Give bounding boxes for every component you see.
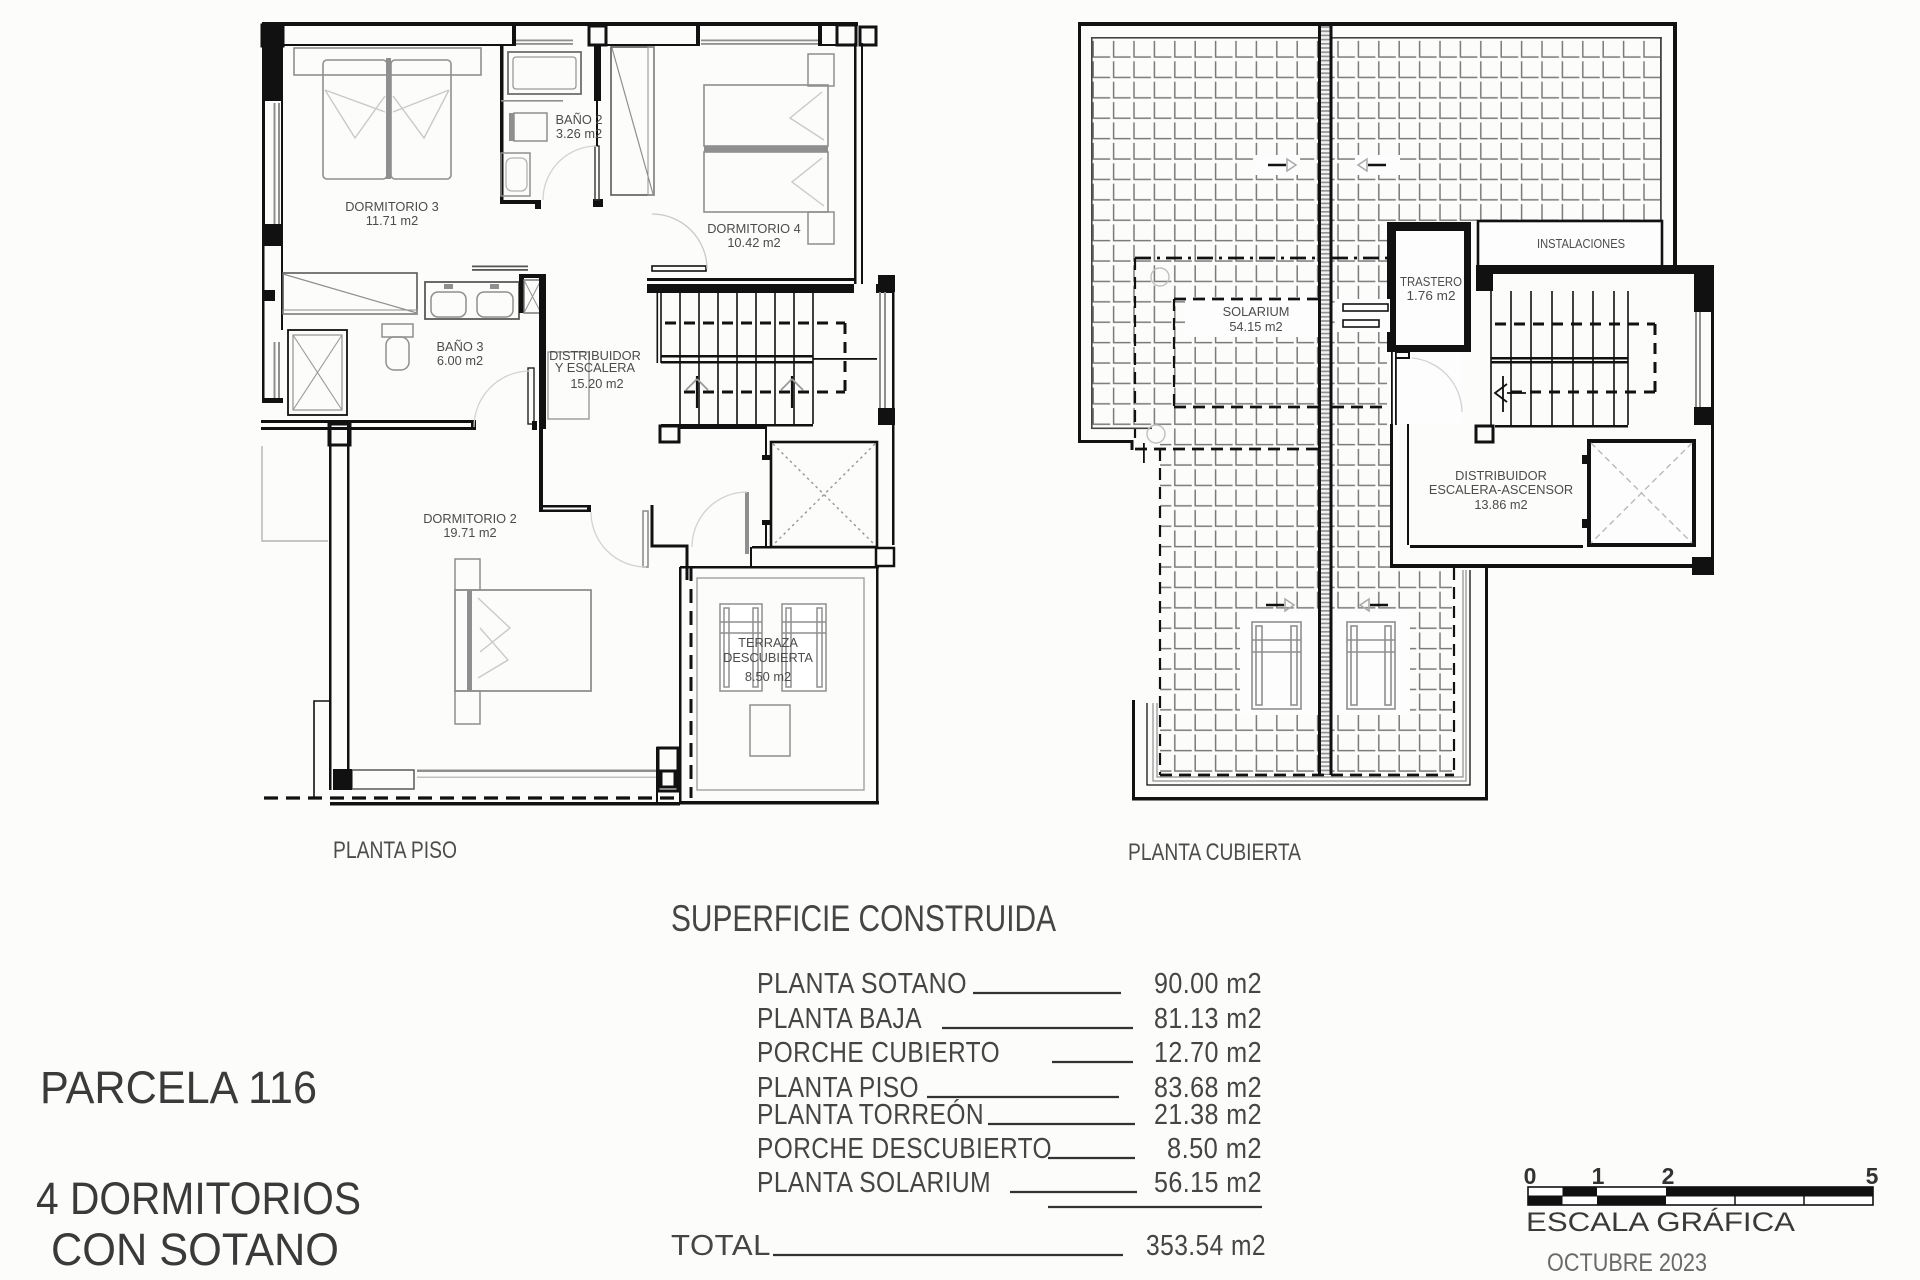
svg-text:PLANTA SOLARIUM: PLANTA SOLARIUM xyxy=(757,1167,991,1199)
svg-text:ESCALERA-ASCENSOR: ESCALERA-ASCENSOR xyxy=(1429,482,1573,497)
svg-text:DORMITORIO 2: DORMITORIO 2 xyxy=(423,511,517,526)
svg-text:Y ESCALERA: Y ESCALERA xyxy=(555,360,636,375)
svg-text:BAÑO 2: BAÑO 2 xyxy=(556,112,603,127)
svg-text:4 DORMITORIOS: 4 DORMITORIOS xyxy=(36,1173,361,1224)
svg-text:DESCUBIERTA: DESCUBIERTA xyxy=(723,650,813,665)
svg-text:353.54 m2: 353.54 m2 xyxy=(1146,1230,1266,1262)
svg-text:PLANTA BAJA: PLANTA BAJA xyxy=(757,1003,922,1035)
svg-text:19.71 m2: 19.71 m2 xyxy=(443,525,496,540)
svg-text:CON SOTANO: CON SOTANO xyxy=(51,1224,339,1275)
svg-text:8.50 m2: 8.50 m2 xyxy=(745,669,791,684)
svg-text:PLANTA CUBIERTA: PLANTA CUBIERTA xyxy=(1128,839,1301,866)
svg-text:ESCALA GRÁFICA: ESCALA GRÁFICA xyxy=(1526,1207,1795,1237)
svg-text:3.26 m2: 3.26 m2 xyxy=(556,126,602,141)
svg-text:6.00 m2: 6.00 m2 xyxy=(437,353,483,368)
svg-text:10.42 m2: 10.42 m2 xyxy=(727,235,780,250)
svg-text:OCTUBRE 2023: OCTUBRE 2023 xyxy=(1547,1249,1707,1277)
svg-text:INSTALACIONES: INSTALACIONES xyxy=(1537,236,1625,251)
svg-text:PLANTA SOTANO: PLANTA SOTANO xyxy=(757,968,967,1000)
svg-text:DORMITORIO 4: DORMITORIO 4 xyxy=(707,221,801,236)
svg-text:81.13 m2: 81.13 m2 xyxy=(1154,1003,1262,1035)
svg-text:0: 0 xyxy=(1524,1163,1537,1189)
svg-text:90.00 m2: 90.00 m2 xyxy=(1154,968,1262,1000)
svg-text:SUPERFICIE CONSTRUIDA: SUPERFICIE CONSTRUIDA xyxy=(671,898,1056,939)
svg-text:11.71 m2: 11.71 m2 xyxy=(366,213,418,228)
svg-text:PORCHE CUBIERTO: PORCHE CUBIERTO xyxy=(757,1037,1000,1069)
svg-text:1: 1 xyxy=(1592,1163,1605,1189)
svg-text:SOLARIUM: SOLARIUM xyxy=(1223,304,1290,319)
svg-text:PLANTA TORREÓN: PLANTA TORREÓN xyxy=(757,1098,984,1131)
svg-text:DORMITORIO 3: DORMITORIO 3 xyxy=(345,199,439,214)
svg-text:PORCHE DESCUBIERTO: PORCHE DESCUBIERTO xyxy=(757,1133,1052,1165)
svg-text:15.20 m2: 15.20 m2 xyxy=(570,376,623,391)
svg-text:1.76 m2: 1.76 m2 xyxy=(1407,288,1456,303)
svg-text:DISTRIBUIDOR: DISTRIBUIDOR xyxy=(1455,468,1547,483)
svg-text:5: 5 xyxy=(1866,1163,1879,1189)
svg-text:TRASTERO: TRASTERO xyxy=(1400,274,1462,289)
svg-text:2: 2 xyxy=(1662,1163,1675,1189)
svg-text:54.15 m2: 54.15 m2 xyxy=(1229,319,1282,334)
svg-text:TOTAL: TOTAL xyxy=(671,1230,771,1262)
svg-text:PARCELA 116: PARCELA 116 xyxy=(40,1062,317,1113)
svg-text:12.70 m2: 12.70 m2 xyxy=(1154,1037,1262,1069)
svg-text:BAÑO 3: BAÑO 3 xyxy=(437,339,484,354)
svg-text:56.15 m2: 56.15 m2 xyxy=(1154,1167,1262,1199)
svg-text:21.38 m2: 21.38 m2 xyxy=(1154,1099,1262,1131)
svg-text:TERRAZA: TERRAZA xyxy=(738,635,798,650)
svg-text:PLANTA PISO: PLANTA PISO xyxy=(333,837,457,864)
svg-text:13.86 m2: 13.86 m2 xyxy=(1474,497,1527,512)
svg-text:8.50 m2: 8.50 m2 xyxy=(1167,1133,1262,1165)
